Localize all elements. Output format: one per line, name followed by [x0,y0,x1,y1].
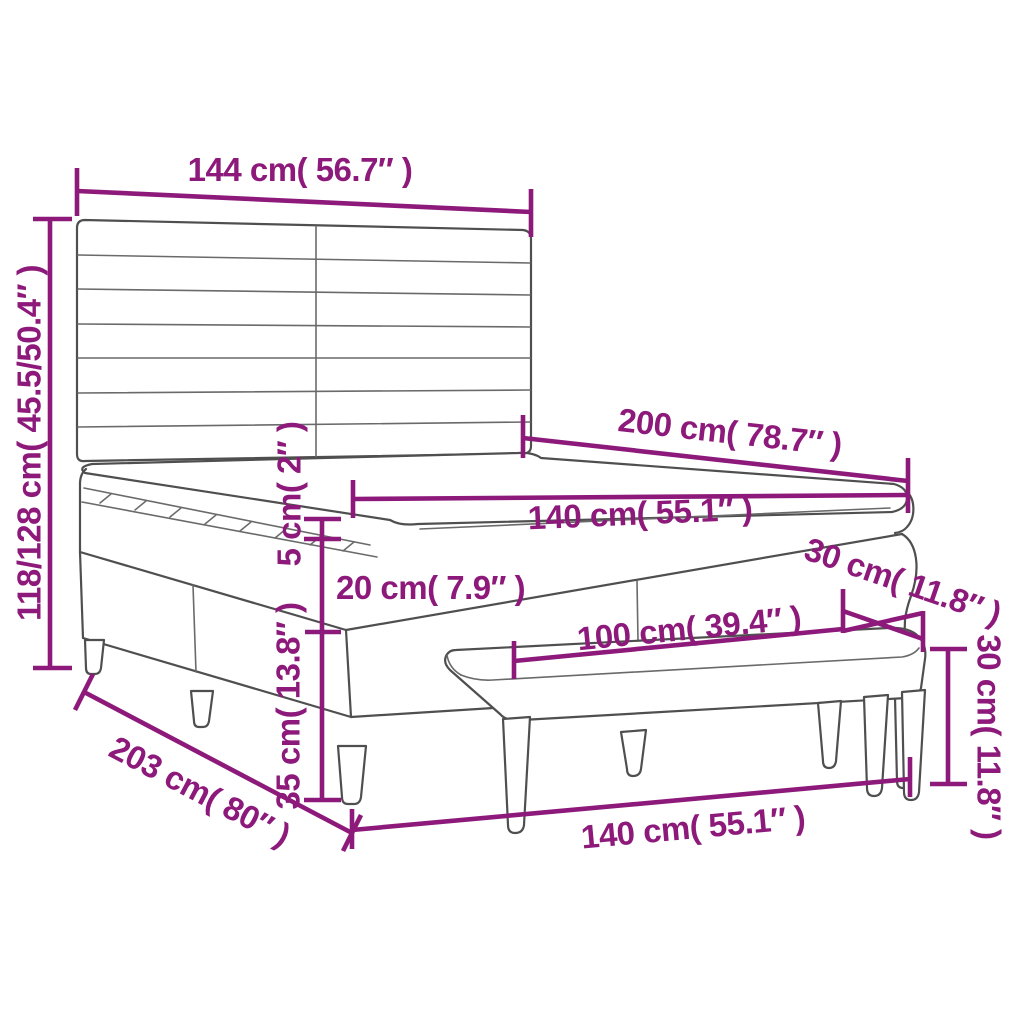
stitch-mark [135,501,146,510]
dim-label-headboard-height: 118/128 cm( 45.5/50.4″ ) [11,265,48,621]
dim-label-bench-height: 30 cm( 11.8″ ) [971,634,1008,839]
stitch-mark [170,508,181,517]
mattress-left-edge [80,469,86,552]
bed-dimension-diagram: 144 cm( 56.7″ ) 118/128 cm( 45.5/50.4″ )… [0,0,1024,1024]
stitch-mark [240,522,251,531]
stitch-mark [100,494,111,503]
bed-leg [85,640,104,674]
stitch-mark [343,542,354,551]
dim-headboard-height: 118/128 cm( 45.5/50.4″ ) [11,219,73,668]
bed-leg [338,746,366,804]
dim-base-length: 203 cm( 80″ ) [75,674,361,853]
bed-leg [191,691,213,727]
base-left-edge [80,552,83,638]
dim-label-topper-height: 5 cm( 2″ ) [271,422,308,567]
dim-label-mattress-height: 20 cm( 7.9″ ) [336,569,525,606]
stitch-mark [205,515,216,524]
dim-label-headboard-width: 144 cm( 56.7″ ) [188,151,413,188]
base-left-divider [193,585,196,672]
dim-label-base-height: 35 cm( 13.8″ ) [270,603,307,810]
dim-bench-height: 30 cm( 11.8″ ) [930,634,1008,839]
bench-leg [902,690,925,800]
bench-leg [818,701,841,768]
diagram-canvas: 144 cm( 56.7″ ) 118/128 cm( 45.5/50.4″ )… [0,0,1024,1024]
dim-line [77,191,531,212]
mattress-top-surface [82,453,907,525]
base-front-corner-edge [346,630,351,717]
bench-leg [621,730,646,776]
